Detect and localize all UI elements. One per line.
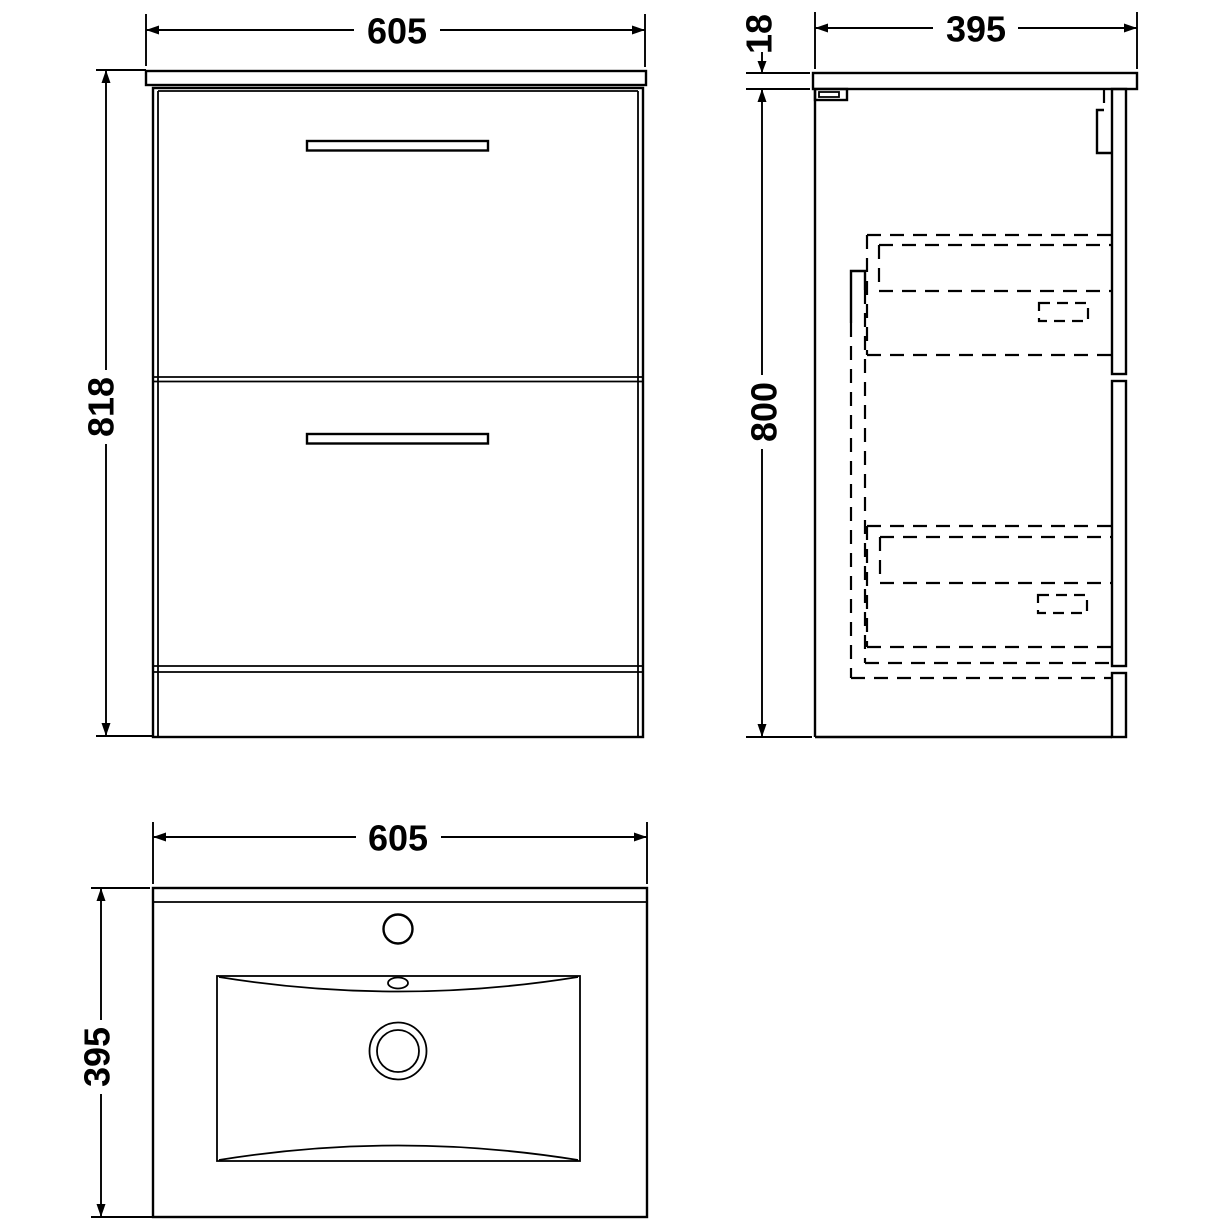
worktop-thickness-dimension: 18 [739,14,811,89]
dimension-arrow [758,89,767,102]
waste-outer-ring [370,1023,427,1080]
back-rail-step [1097,110,1112,153]
tap-hole [384,915,413,944]
dimension-arrow [758,724,767,737]
dimension-arrow [102,70,111,83]
dimension-arrow [146,26,159,35]
side-depth-dimension: 395 [815,9,1137,70]
dimension-arrow [632,26,645,35]
vanity-unit-dimension-drawing: 605 818 [0,0,1224,1224]
dimension-arrow [102,723,111,736]
dimension-arrow [1124,24,1137,33]
drawer1-box-hidden [867,235,1112,355]
drawer-runner-hidden [1038,595,1087,613]
dimension-arrow [97,1204,106,1217]
front-view: 605 818 [81,11,647,738]
front-rail-bracket-inner [819,92,839,97]
side-height-value: 800 [744,382,785,442]
worktop-thickness-value: 18 [739,14,780,54]
dimension-arrow [153,833,166,842]
basin-bowl-bottom-curve [219,1146,578,1161]
worktop-front [146,71,646,85]
drawer-front-hidden-plane [851,271,1112,678]
drawer-runner-hidden [1039,303,1088,321]
dimension-arrow [97,888,106,901]
plan-view: 605 395 [77,818,648,1218]
overflow-hole [388,978,408,989]
back-panel-segment [1112,89,1126,374]
cabinet-outline-front [153,88,643,737]
drawer2-box-hidden [867,526,1112,647]
front-height-value: 818 [81,377,122,437]
drawer-front-top-bracket [851,271,865,323]
plan-width-value: 605 [368,818,428,859]
side-height-dimension: 800 [744,89,813,737]
drawer2-handle [307,434,488,444]
back-panel-segment [1112,381,1126,666]
plan-depth-value: 395 [77,1027,118,1087]
worktop-plan-outline [153,888,647,1217]
technical-drawing-sheet: 605 818 [0,0,1224,1224]
back-panel-segment [1112,673,1126,737]
plan-width-dimension: 605 [153,818,647,885]
front-width-dimension: 605 [146,11,645,68]
waste-inner-ring [377,1030,419,1072]
worktop-side [813,73,1137,89]
dimension-arrow [815,24,828,33]
front-height-dimension: 818 [81,70,153,736]
dimension-arrow [758,61,767,73]
front-width-value: 605 [367,11,427,52]
drawer1-handle [307,141,488,151]
basin-bowl-outline [217,976,580,1161]
side-depth-value: 395 [946,9,1006,50]
side-view: 395 18 800 [739,9,1138,738]
dimension-arrow [634,833,647,842]
plan-depth-dimension: 395 [77,888,161,1217]
